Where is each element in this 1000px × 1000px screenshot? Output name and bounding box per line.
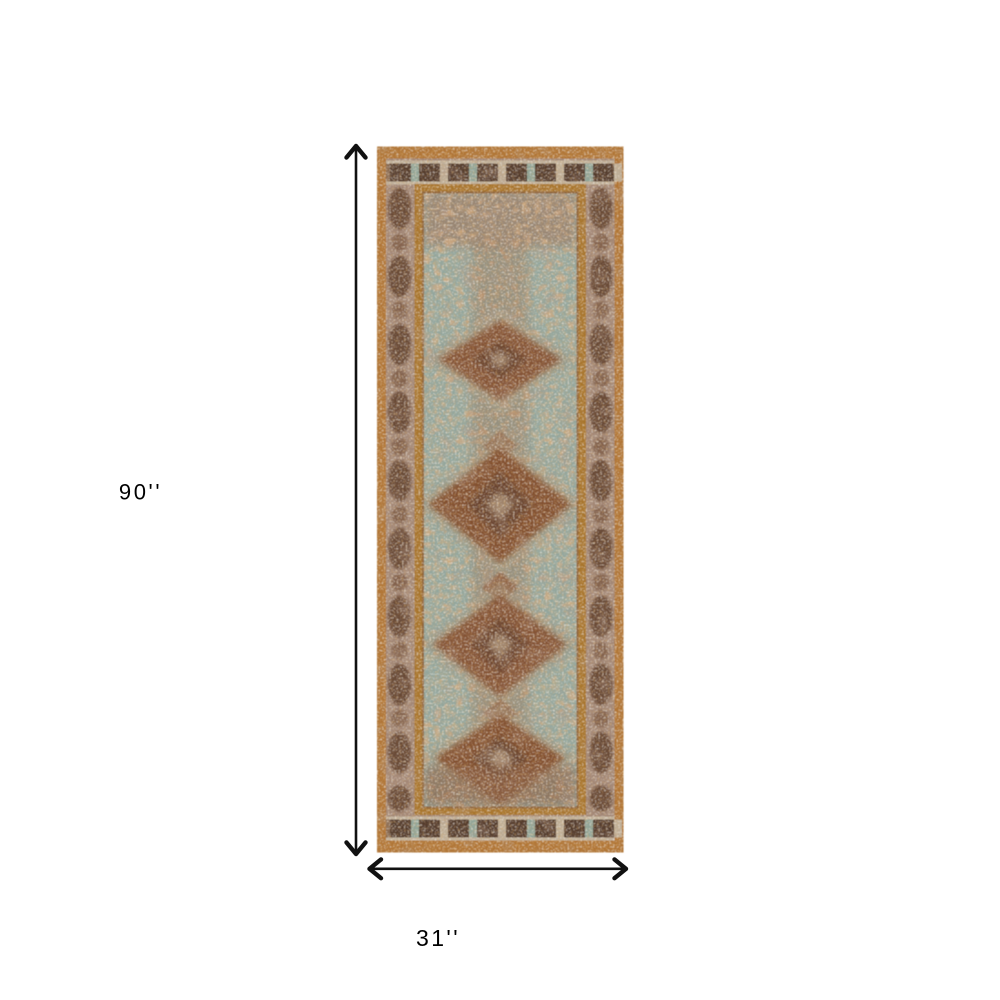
svg-text:90'': 90'' (119, 480, 162, 505)
svg-text:31'': 31'' (416, 925, 460, 951)
